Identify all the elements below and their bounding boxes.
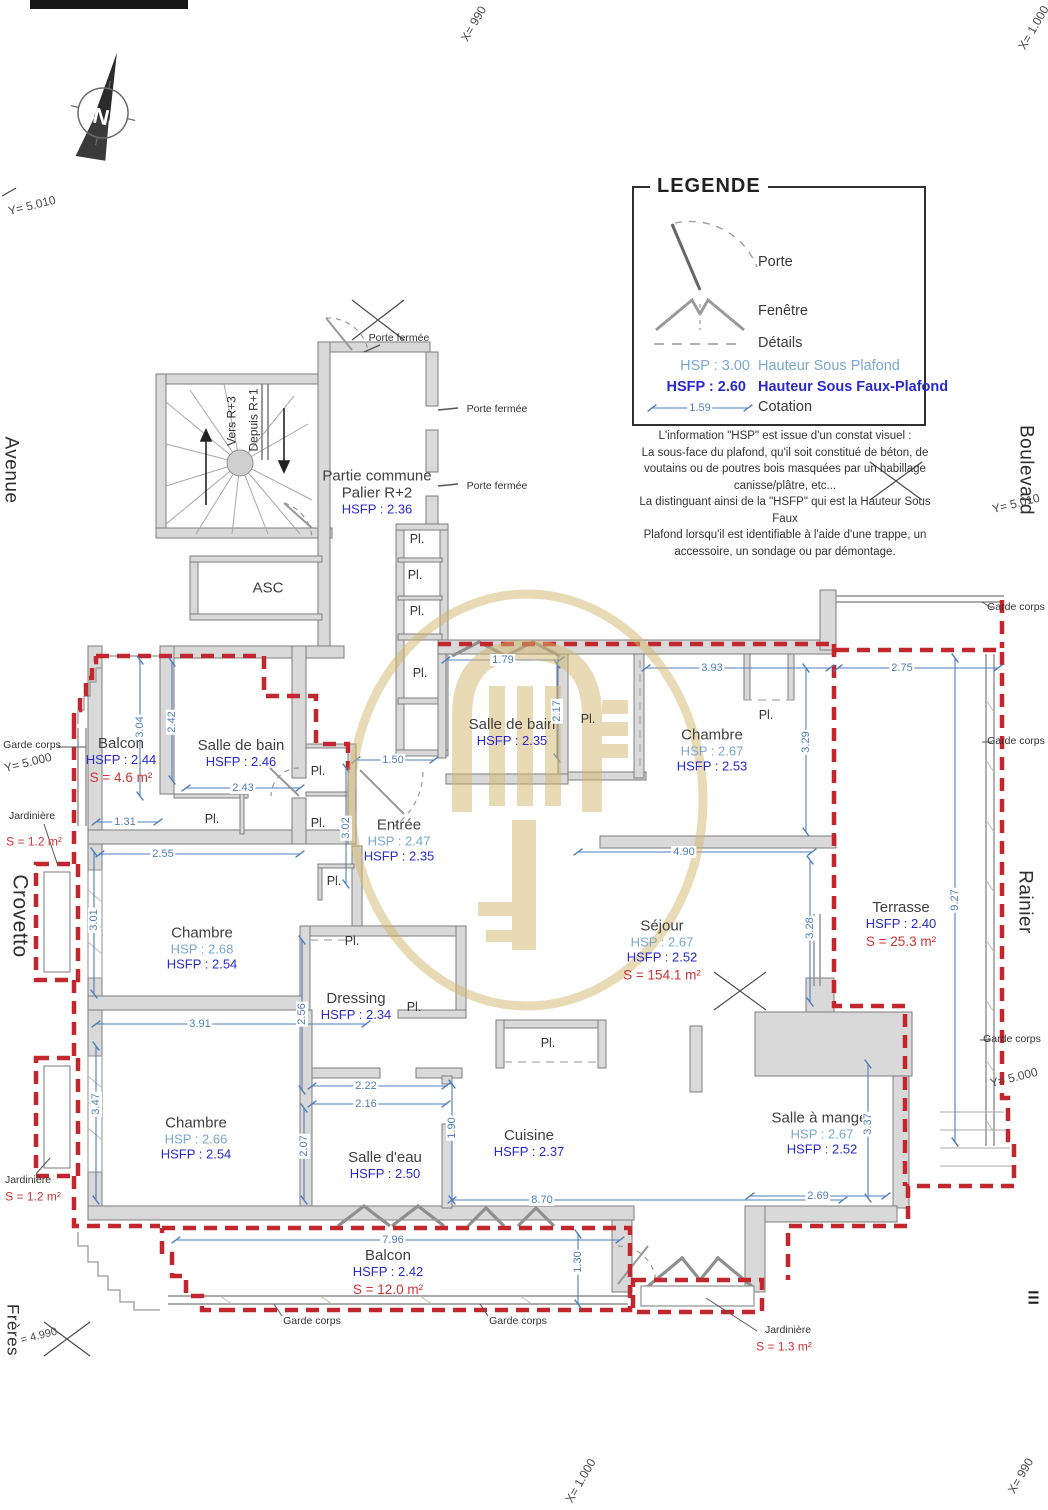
legend-fenetre-label: Fenêtre xyxy=(758,303,808,319)
room-name: Partie commune xyxy=(322,469,431,484)
dimension-label: 2.55 xyxy=(150,848,175,860)
room-label-asc: ASC xyxy=(253,579,284,598)
legend-hsp-label: Hauteur Sous Plafond xyxy=(758,358,900,374)
dimension-label: 3.93 xyxy=(699,662,724,674)
room-hsp: HSP : 2.67 xyxy=(772,1128,873,1141)
room-hsp: HSP : 2.47 xyxy=(364,835,435,848)
closet-label: Pl. xyxy=(413,667,428,681)
dimension-label: 3.02 xyxy=(340,815,352,840)
room-hsfp: HSFP : 2.54 xyxy=(167,958,238,971)
dimension-label: 7.96 xyxy=(380,1234,405,1246)
guard-rail-label: Garde corps xyxy=(283,1316,341,1328)
closet-label: Pl. xyxy=(205,813,220,827)
legend-note: L'information "HSP" est issue d'un const… xyxy=(634,428,936,560)
closet-label: Pl. xyxy=(407,1001,422,1015)
room-area: S = 25.3 m² xyxy=(866,935,937,949)
planter-label: Jardinière xyxy=(765,1325,811,1337)
legend-title: LEGENDE xyxy=(650,175,768,198)
dimension-label: 2.75 xyxy=(889,662,914,674)
planter-label: Jardinière xyxy=(5,1175,51,1187)
room-label-salle-de-bain-1: Salle de bain HSFP : 2.46 xyxy=(198,736,285,770)
room-name: Cuisine xyxy=(494,1128,565,1143)
dimension-label: 2.56 xyxy=(296,1001,308,1026)
room-name: Chambre xyxy=(677,728,748,743)
room-name: ASC xyxy=(253,581,284,596)
room-hsfp: HSFP : 2.52 xyxy=(772,1143,873,1156)
room-hsfp: HSFP : 2.36 xyxy=(322,503,431,516)
floor-plan-page: LEGENDE Porte Fenêtre Détails HSP : 3.00… xyxy=(0,0,1048,1510)
dimension-label: 1.30 xyxy=(572,1249,584,1274)
room-hsp: HSP : 2.67 xyxy=(677,745,748,758)
note-line: canisse/plâtre, etc... xyxy=(634,478,936,495)
room-hsfp: HSFP : 2.54 xyxy=(161,1148,232,1161)
dimension-label: 9.27 xyxy=(949,887,961,912)
closet-label: Pl. xyxy=(311,765,326,779)
stairs-down-label: Depuis R+1 xyxy=(247,388,260,451)
closet-label: Pl. xyxy=(327,875,342,889)
guard-rail-label: Garde corps xyxy=(983,1034,1041,1046)
dimension-label: 2.69 xyxy=(805,1190,830,1202)
room-label-chambre-sud: Chambre HSP : 2.66 HSFP : 2.54 xyxy=(161,1114,232,1163)
room-label-salle-de-bain-2: Salle de bain HSFP : 2.35 xyxy=(469,715,556,749)
closed-door-label: Porte fermée xyxy=(467,481,528,493)
redaction-bar xyxy=(30,0,188,9)
room-name: Dressing xyxy=(321,991,392,1006)
room-label-terrasse: Terrasse HSFP : 2.40 S = 25.3 m² xyxy=(866,898,937,951)
room-hsfp: HSFP : 2.35 xyxy=(469,734,556,747)
room-area: S = 154.1 m² xyxy=(623,968,701,982)
closet-label: Pl. xyxy=(759,709,774,723)
planter-area: S = 1.2 m² xyxy=(6,835,62,848)
room-hsfp: HSFP : 2.37 xyxy=(494,1145,565,1158)
note-line: La sous-face du plafond, qu'il soit cons… xyxy=(634,445,936,462)
room-hsfp: HSFP : 2.42 xyxy=(353,1265,424,1278)
note-line: La distinguant ainsi de la "HSFP" qui es… xyxy=(634,494,936,527)
dimension-label: 2.17 xyxy=(551,698,563,723)
closet-label: Pl. xyxy=(410,533,425,547)
dimension-label: 3.37 xyxy=(862,1111,874,1136)
room-label-salle-a-manger: Salle à manger HSP : 2.67 HSFP : 2.52 xyxy=(772,1109,873,1158)
room-name: Séjour xyxy=(623,918,701,933)
room-hsfp: HSFP : 2.40 xyxy=(866,917,937,930)
dimension-label: 2.16 xyxy=(353,1098,378,1110)
guard-rail-label: Garde corps xyxy=(489,1316,547,1328)
legend-porte-label: Porte xyxy=(758,254,793,270)
closed-door-label: Porte fermée xyxy=(369,333,430,345)
closet-label: Pl. xyxy=(581,713,596,727)
note-line: L'information "HSP" est issue d'un const… xyxy=(634,428,936,445)
street-avenue: Avenue xyxy=(0,436,20,503)
street-freres: Frères xyxy=(3,1304,22,1356)
dimension-label: 3.29 xyxy=(800,729,812,754)
room-hsfp: HSFP : 2.44 xyxy=(86,753,157,766)
room-hsfp: HSFP : 2.53 xyxy=(677,760,748,773)
room-label-cuisine: Cuisine HSFP : 2.37 xyxy=(494,1126,565,1160)
room-name: Salle à manger xyxy=(772,1111,873,1126)
room-name: Balcon xyxy=(353,1248,424,1263)
legend-hsfp-value: HSFP : 2.60 xyxy=(642,379,746,395)
closet-label: Pl. xyxy=(345,935,360,949)
legend-hsp-value: HSP : 3.00 xyxy=(646,358,750,374)
street-numeral-iii: III xyxy=(1024,1290,1041,1306)
closet-label: Pl. xyxy=(410,605,425,619)
dimension-label: 3.47 xyxy=(90,1091,102,1116)
room-label-chambre-ne: Chambre HSP : 2.67 HSFP : 2.53 xyxy=(677,726,748,775)
room-name: Salle de bain xyxy=(198,738,285,753)
room-hsfp: HSFP : 2.50 xyxy=(348,1167,422,1180)
legend-cotation-label: Cotation xyxy=(758,399,812,415)
dimension-label: 3.04 xyxy=(134,714,146,739)
room-label-balcon-sud: Balcon HSFP : 2.42 S = 12.0 m² xyxy=(353,1246,424,1299)
dimension-label: 8.70 xyxy=(529,1194,554,1206)
dimension-label: 1.79 xyxy=(490,654,515,666)
dimension-label: 2.43 xyxy=(230,782,255,794)
closed-door-label: Porte fermée xyxy=(467,404,528,416)
street-crovetto: Crovetto xyxy=(8,874,31,957)
room-name: Entrée xyxy=(364,818,435,833)
note-line: voutains ou de poutres bois masquées par… xyxy=(634,461,936,478)
room-label-balcon-nord: Balcon HSFP : 2.44 S = 4.6 m² xyxy=(86,734,157,787)
legend-details-label: Détails xyxy=(758,335,802,351)
room-area: S = 4.6 m² xyxy=(86,771,157,785)
room-hsp: HSP : 2.66 xyxy=(161,1133,232,1146)
room-name: Chambre xyxy=(167,926,238,941)
dimension-label: 3.91 xyxy=(187,1018,212,1030)
planter-label: Jardinière xyxy=(9,811,55,823)
room-hsfp: HSFP : 2.35 xyxy=(364,850,435,863)
room-label-partie-commune: Partie commune Palier R+2 HSFP : 2.36 xyxy=(322,467,431,518)
stairs-up-label: Vers R+3 xyxy=(225,396,238,446)
guard-rail-label: Garde corps xyxy=(987,736,1045,748)
dimension-label: 3.28 xyxy=(804,915,816,940)
room-hsfp: HSFP : 2.34 xyxy=(321,1008,392,1021)
dimension-label: 1.90 xyxy=(446,1115,458,1140)
room-hsp: HSP : 2.68 xyxy=(167,943,238,956)
planter-area: S = 1.3 m² xyxy=(756,1340,812,1353)
room-name: Salle d'eau xyxy=(348,1150,422,1165)
note-line: Plafond lorsqu'il est identifiable à l'a… xyxy=(634,527,936,544)
room-label-chambre-ouest: Chambre HSP : 2.68 HSFP : 2.54 xyxy=(167,924,238,973)
room-label-salle-eau: Salle d'eau HSFP : 2.50 xyxy=(348,1148,422,1182)
dimension-label: 3.01 xyxy=(88,907,100,932)
room-area: S = 12.0 m² xyxy=(353,1283,424,1297)
closet-label: Pl. xyxy=(541,1037,556,1051)
room-name: Salle de bain xyxy=(469,717,556,732)
note-line: accessoire, un sondage ou par démontage. xyxy=(634,544,936,561)
room-label-sejour: Séjour HSP : 2.67 HSFP : 2.52 S = 154.1 … xyxy=(623,916,701,984)
room-hsp: HSP : 2.67 xyxy=(623,935,701,948)
dimension-label: 2.42 xyxy=(166,709,178,734)
legend-cotation-value: 1.59 xyxy=(687,402,712,414)
dimension-label: 2.22 xyxy=(353,1080,378,1092)
closet-label: Pl. xyxy=(311,817,326,831)
planter-area: S = 1.2 m² xyxy=(5,1190,61,1203)
room-hsfp: HSFP : 2.52 xyxy=(623,950,701,963)
dimension-label: 2.07 xyxy=(298,1133,310,1158)
guard-rail-label: Garde corps xyxy=(3,740,61,752)
room-name: Chambre xyxy=(161,1116,232,1131)
room-label-dressing: Dressing HSFP : 2.34 xyxy=(321,989,392,1023)
legend-hsfp-label: Hauteur Sous Faux-Plafond xyxy=(758,379,948,395)
dimension-label: 1.50 xyxy=(380,754,405,766)
closet-label: Pl. xyxy=(408,569,423,583)
guard-rail-label: Garde corps xyxy=(987,602,1045,614)
room-name: Palier R+2 xyxy=(322,486,431,501)
staircase xyxy=(166,384,312,534)
room-hsfp: HSFP : 2.46 xyxy=(198,755,285,768)
dimension-label: 4.90 xyxy=(671,846,696,858)
street-rainier: Rainier xyxy=(1014,870,1035,934)
dimension-label: 1.31 xyxy=(112,816,137,828)
room-name: Terrasse xyxy=(866,900,937,915)
room-label-entree: Entrée HSP : 2.47 HSFP : 2.35 xyxy=(364,816,435,865)
